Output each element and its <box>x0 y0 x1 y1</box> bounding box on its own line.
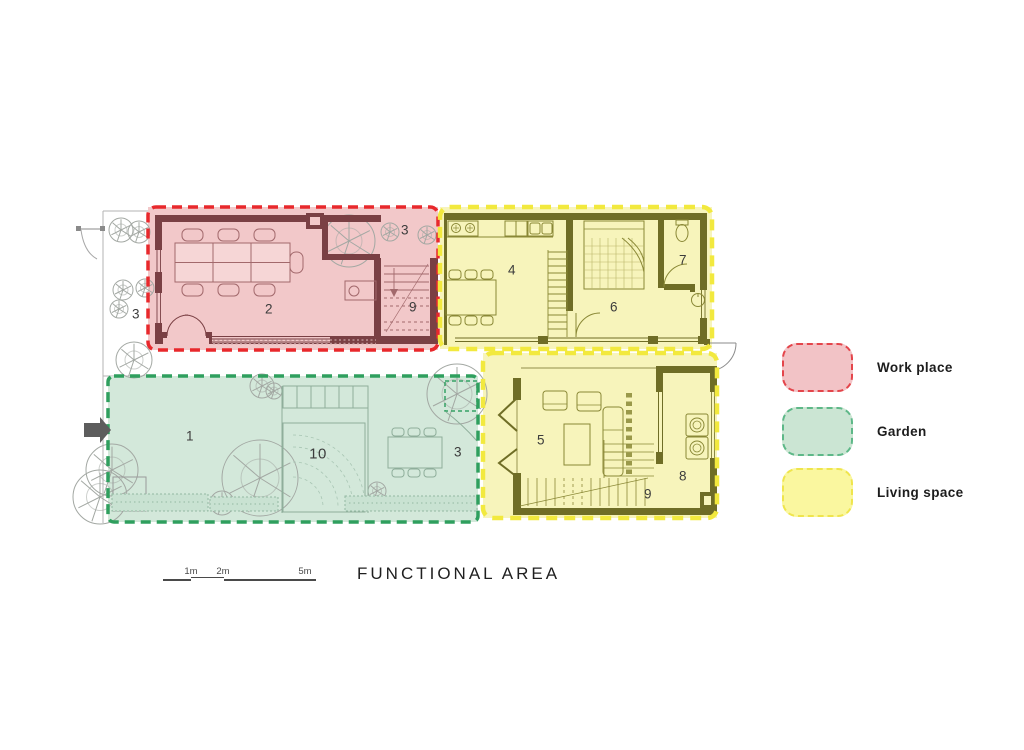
label-terrace: 3 <box>454 445 462 460</box>
page-title: FUNCTIONAL AREA <box>357 564 560 584</box>
scale-segment <box>163 579 191 581</box>
scale-label-5m: 5m <box>298 566 311 577</box>
label-trees-top: 3 <box>401 223 409 238</box>
label-stairs-lower: 9 <box>644 487 652 502</box>
label-bedroom: 6 <box>610 300 618 315</box>
legend-label-living-space: Living space <box>877 485 964 500</box>
label-garden: 1 <box>186 429 194 444</box>
label-deck: 10 <box>309 446 327 463</box>
legend-item-living-space: Living space <box>782 468 853 517</box>
legend-swatch-0 <box>782 343 853 392</box>
legend-swatch-2 <box>782 468 853 517</box>
floor-plan-drawing <box>0 0 1024 750</box>
label-side-yard: 3 <box>132 307 140 322</box>
scale-bar: 1m 2m 5m <box>163 566 317 584</box>
label-kitchen: 4 <box>508 263 516 278</box>
functional-area-plan: 3 2 3 9 4 6 7 5 8 9 1 10 3 Work place Ga… <box>0 0 1024 750</box>
scale-segment <box>224 579 316 581</box>
legend-label-work-place: Work place <box>877 360 953 375</box>
entrance-arrow-icon <box>84 417 111 443</box>
label-bathroom: 7 <box>679 253 687 268</box>
scale-segment <box>191 577 224 579</box>
legend-label-garden: Garden <box>877 424 927 439</box>
label-living-room: 5 <box>537 433 545 448</box>
legend-item-garden: Garden <box>782 407 853 456</box>
label-office: 2 <box>265 302 273 317</box>
legend-swatch-1 <box>782 407 853 456</box>
scale-label-2m: 2m <box>216 566 229 577</box>
label-stairs-upper: 9 <box>409 300 417 315</box>
scale-label-1m: 1m <box>184 566 197 577</box>
label-laundry: 8 <box>679 469 687 484</box>
legend-item-work-place: Work place <box>782 343 853 392</box>
